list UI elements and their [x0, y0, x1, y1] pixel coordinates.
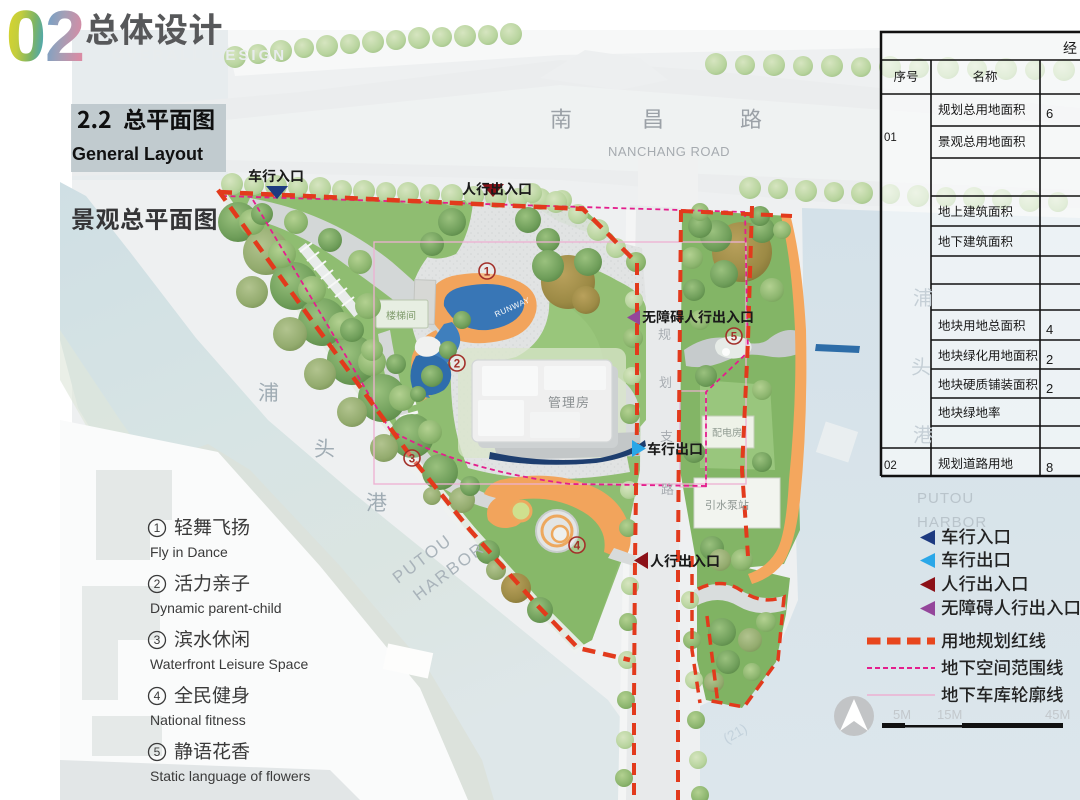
svg-text:Fly in Dance: Fly in Dance — [150, 544, 228, 560]
svg-text:4: 4 — [1046, 322, 1053, 337]
svg-text:3: 3 — [409, 454, 415, 466]
svg-text:Dynamic parent-child: Dynamic parent-child — [150, 600, 282, 616]
svg-text:PUTOU: PUTOU — [917, 490, 974, 507]
svg-text:5M: 5M — [893, 707, 911, 722]
svg-text:5: 5 — [154, 745, 161, 759]
svg-text:National fitness: National fitness — [150, 712, 246, 728]
svg-text:HARBOR: HARBOR — [917, 514, 987, 531]
svg-text:OVERALL DESIGN: OVERALL DESIGN — [112, 47, 287, 64]
svg-text:2: 2 — [154, 577, 161, 591]
svg-text:0: 0 — [6, 0, 46, 77]
svg-text:5: 5 — [731, 332, 738, 344]
svg-text:6: 6 — [1046, 106, 1053, 121]
svg-text:2: 2 — [1046, 352, 1053, 367]
svg-text:Static language of flowers: Static language of flowers — [150, 768, 310, 784]
svg-text:8: 8 — [1046, 460, 1053, 475]
svg-text:4: 4 — [574, 541, 581, 553]
svg-text:2: 2 — [454, 359, 460, 371]
svg-text:1: 1 — [154, 521, 161, 535]
svg-text:1: 1 — [484, 267, 491, 279]
svg-text:General Layout: General Layout — [72, 144, 203, 164]
svg-text:2: 2 — [45, 0, 85, 77]
svg-text:2: 2 — [1046, 381, 1053, 396]
svg-text:01: 01 — [884, 132, 897, 144]
svg-text:15M: 15M — [937, 707, 962, 722]
svg-text:3: 3 — [154, 633, 161, 647]
svg-text:NANCHANG ROAD: NANCHANG ROAD — [608, 144, 730, 159]
svg-text:Waterfront Leisure Space: Waterfront Leisure Space — [150, 656, 308, 672]
svg-text:4: 4 — [154, 689, 161, 703]
svg-text:02: 02 — [884, 460, 897, 472]
svg-text:45M: 45M — [1045, 707, 1070, 722]
